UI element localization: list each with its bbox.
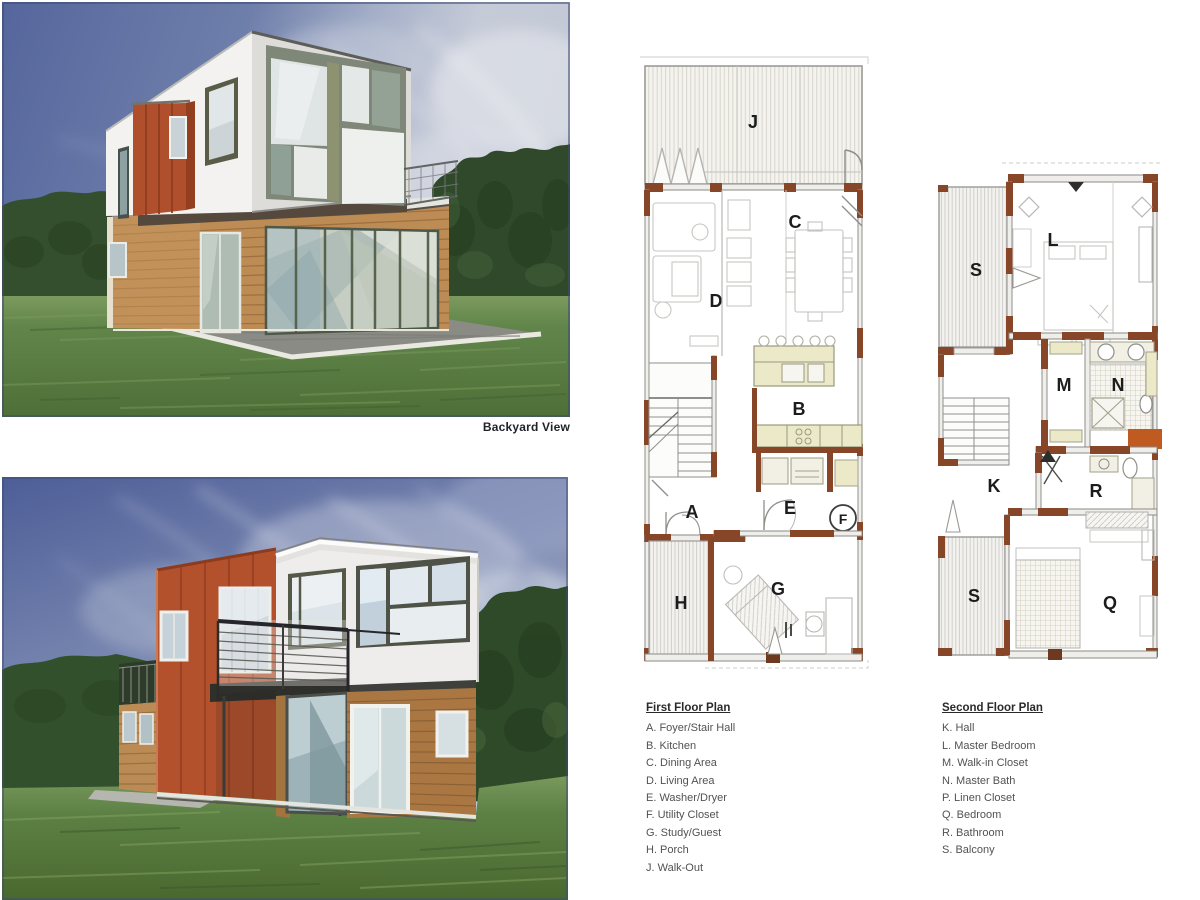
svg-text:C: C (789, 212, 802, 232)
svg-text:J: J (748, 112, 758, 132)
svg-text:F: F (839, 511, 848, 527)
svg-text:B: B (793, 399, 806, 419)
svg-text:D: D (710, 291, 723, 311)
svg-text:Q: Q (1103, 593, 1117, 613)
svg-text:M: M (1057, 375, 1072, 395)
svg-text:R: R (1090, 481, 1103, 501)
svg-text:L: L (1048, 230, 1059, 250)
svg-text:N: N (1112, 375, 1125, 395)
svg-text:A: A (686, 502, 699, 522)
svg-text:K: K (988, 476, 1001, 496)
svg-text:E: E (784, 498, 796, 518)
svg-text:H: H (675, 593, 688, 613)
svg-text:S: S (968, 586, 980, 606)
svg-text:S: S (970, 260, 982, 280)
svg-text:G: G (771, 579, 785, 599)
